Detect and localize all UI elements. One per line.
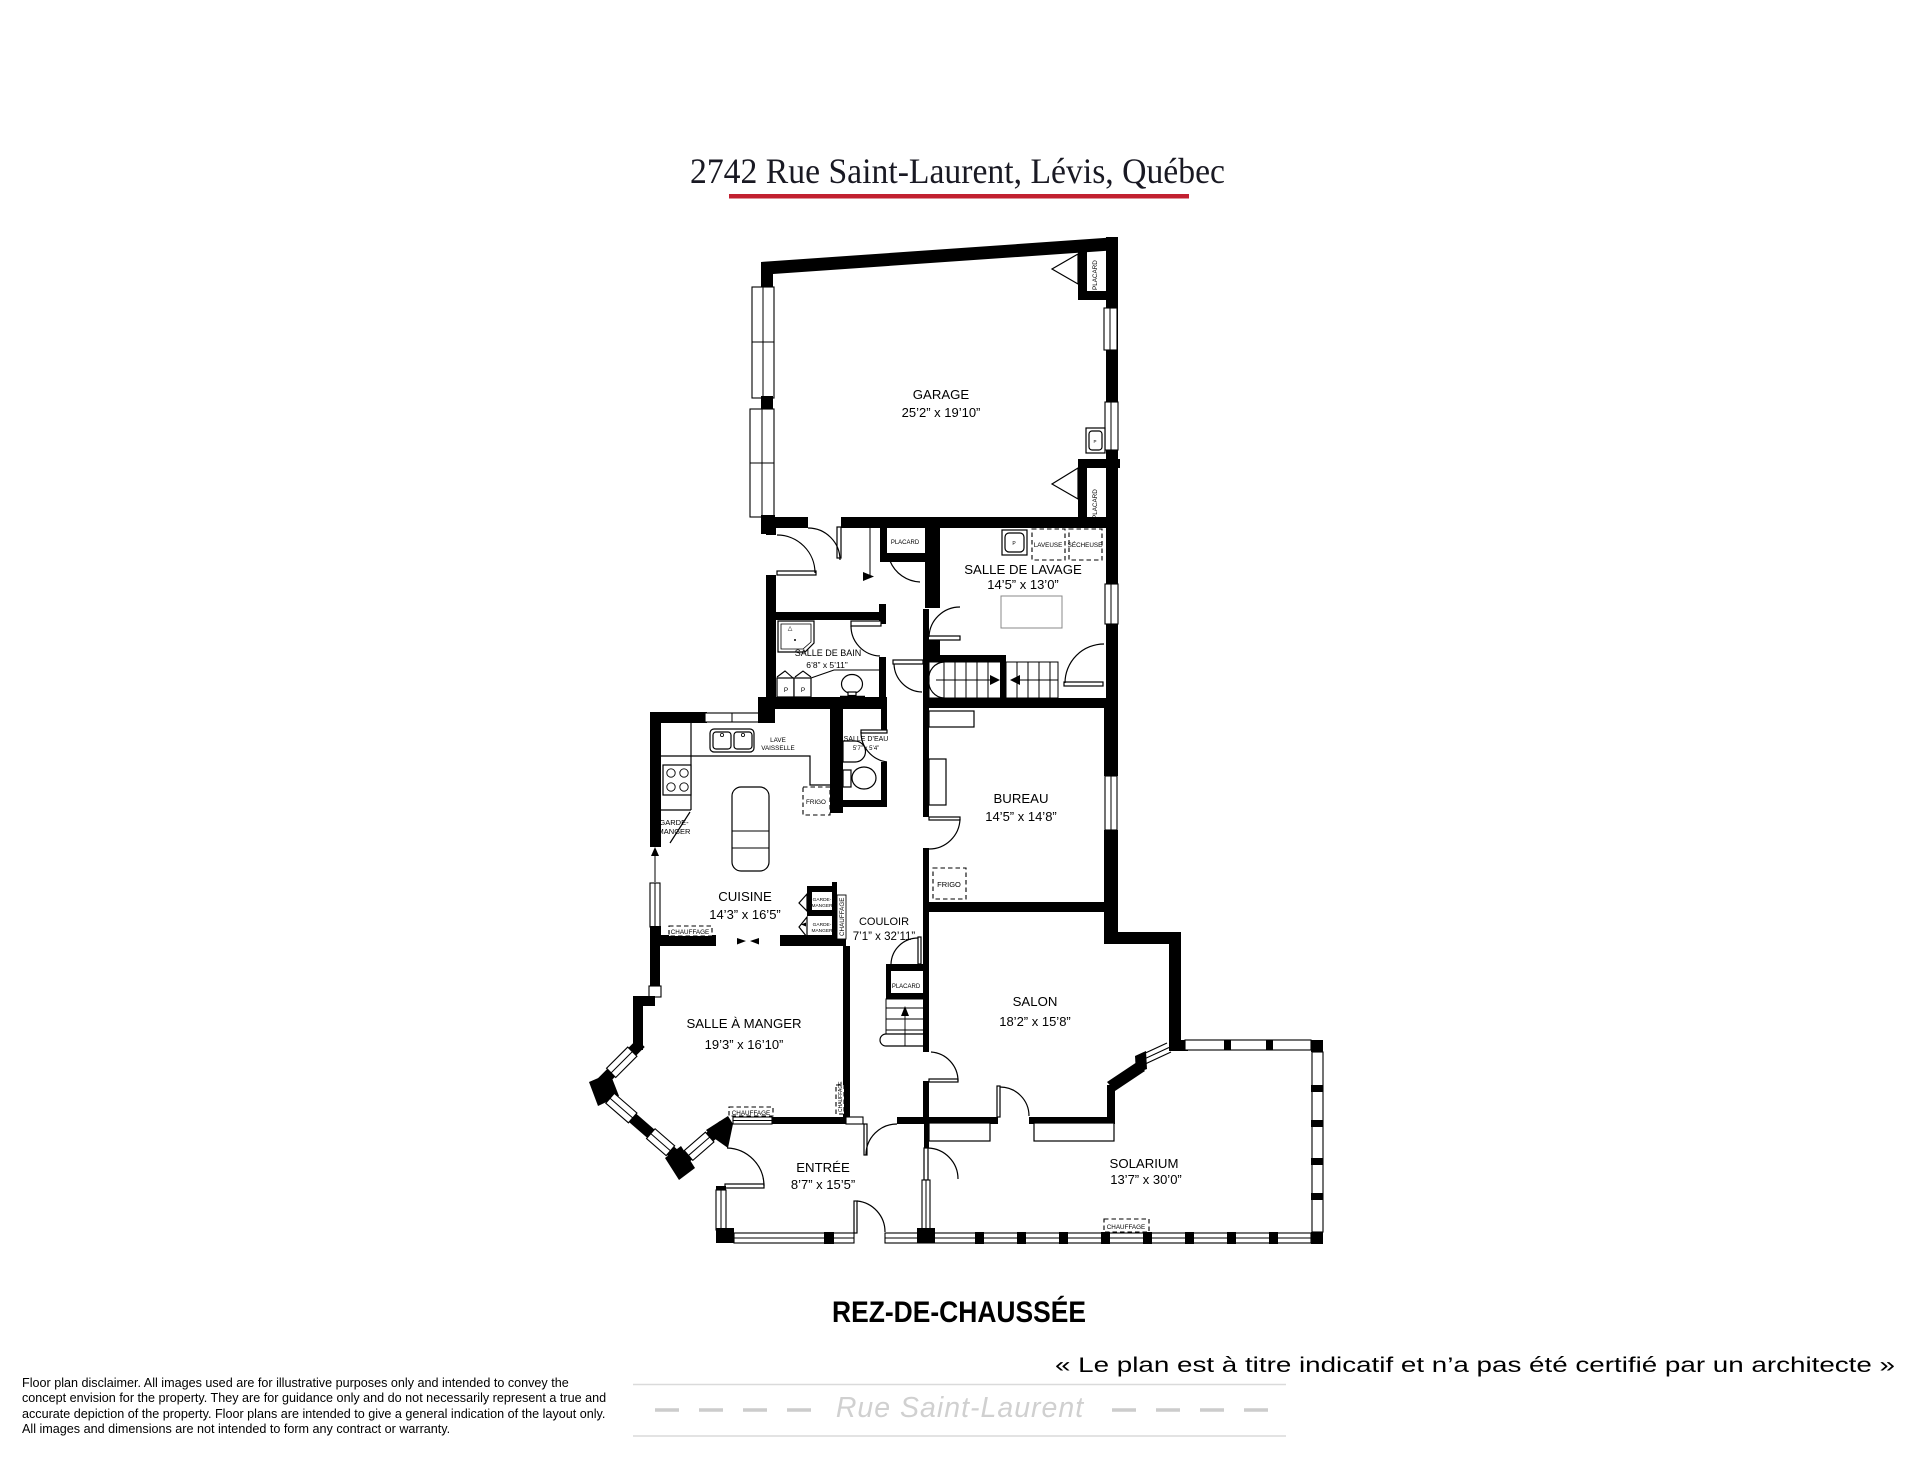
svg-text:ENTRÉE: ENTRÉE [796,1160,850,1175]
svg-text:PLACARD: PLACARD [891,540,920,546]
svg-text:MANGER: MANGER [811,928,833,934]
svg-text:SALLE À MANGER: SALLE À MANGER [686,1016,801,1031]
svg-text:8’7” x 15’5”: 8’7” x 15’5” [791,1177,855,1192]
svg-text:PLACARD: PLACARD [892,984,921,990]
svg-text:CHAUFFAGE: CHAUFFAGE [671,929,710,936]
svg-text:2742 Rue Saint-Laurent, Lévis,: 2742 Rue Saint-Laurent, Lévis, Québec [690,151,1225,191]
svg-text:5’7” x 5’4”: 5’7” x 5’4” [853,746,879,752]
svg-text:Floor plan disclaimer. All ima: Floor plan disclaimer. All images used a… [22,1376,569,1390]
svg-text:CHAUFFAGE: CHAUFFAGE [732,1110,771,1117]
svg-text:LAVEUSE: LAVEUSE [1034,542,1063,549]
svg-text:All images and dimensions are: All images and dimensions are not intend… [22,1422,450,1436]
svg-text:P: P [801,687,805,694]
svg-text:13’7” x 30’0”: 13’7” x 30’0” [1110,1172,1182,1187]
svg-text:SALLE DE LAVAGE: SALLE DE LAVAGE [964,562,1082,577]
svg-text:CHAUFFAGE: CHAUFFAGE [1107,1224,1146,1231]
svg-text:FRIGO: FRIGO [937,880,961,889]
svg-text:CHAUFFAGE: CHAUFFAGE [838,1081,844,1112]
svg-text:MANGER: MANGER [811,903,833,909]
svg-text:« Le plan est à titre indicati: « Le plan est à titre indicatif et n’a p… [1055,1353,1895,1377]
svg-text:SOLARIUM: SOLARIUM [1110,1156,1179,1171]
svg-text:MANGER: MANGER [658,827,692,836]
svg-text:Rue Saint-Laurent: Rue Saint-Laurent [836,1392,1084,1424]
svg-text:COULOIR: COULOIR [859,916,909,928]
svg-text:P: P [1093,439,1096,444]
svg-text:14’5” x 14’8”: 14’5” x 14’8” [985,809,1057,824]
svg-text:concept envision for the prope: concept envision for the property. They … [22,1391,606,1405]
svg-text:accurate depiction of the prop: accurate depiction of the property. Floo… [22,1407,605,1421]
svg-text:SALLE D’EAU: SALLE D’EAU [844,736,889,743]
svg-text:25’2” x 19’10”: 25’2” x 19’10” [902,405,981,420]
svg-text:FRIGO: FRIGO [806,799,826,806]
svg-text:VAISSELLE: VAISSELLE [761,745,795,752]
svg-text:6’8” x 5’11”: 6’8” x 5’11” [806,660,848,670]
svg-text:14’5” x 13’0”: 14’5” x 13’0” [987,577,1059,592]
svg-text:CHAUFFAGE: CHAUFFAGE [839,898,846,937]
svg-text:LAVE: LAVE [770,737,786,744]
svg-text:GARDE-: GARDE- [813,897,832,903]
svg-text:GARDE-: GARDE- [813,922,832,928]
svg-text:19’3” x 16’10”: 19’3” x 16’10” [705,1037,784,1052]
svg-text:REZ-DE-CHAUSSÉE: REZ-DE-CHAUSSÉE [832,1295,1086,1329]
svg-text:P: P [784,687,788,694]
svg-text:SALLE DE BAIN: SALLE DE BAIN [795,648,862,658]
svg-text:PLACARD: PLACARD [1092,260,1099,290]
svg-text:14’3” x 16’5”: 14’3” x 16’5” [709,907,781,922]
svg-text:SÉCHEUSE: SÉCHEUSE [1068,540,1103,549]
svg-text:SALON: SALON [1013,994,1058,1009]
svg-text:BUREAU: BUREAU [994,791,1049,806]
svg-text:△: △ [788,626,793,632]
svg-text:GARAGE: GARAGE [913,387,970,402]
svg-text:18’2” x 15’8”: 18’2” x 15’8” [999,1014,1071,1029]
svg-text:PLACARD: PLACARD [1092,489,1099,519]
svg-text:CUISINE: CUISINE [718,889,772,904]
